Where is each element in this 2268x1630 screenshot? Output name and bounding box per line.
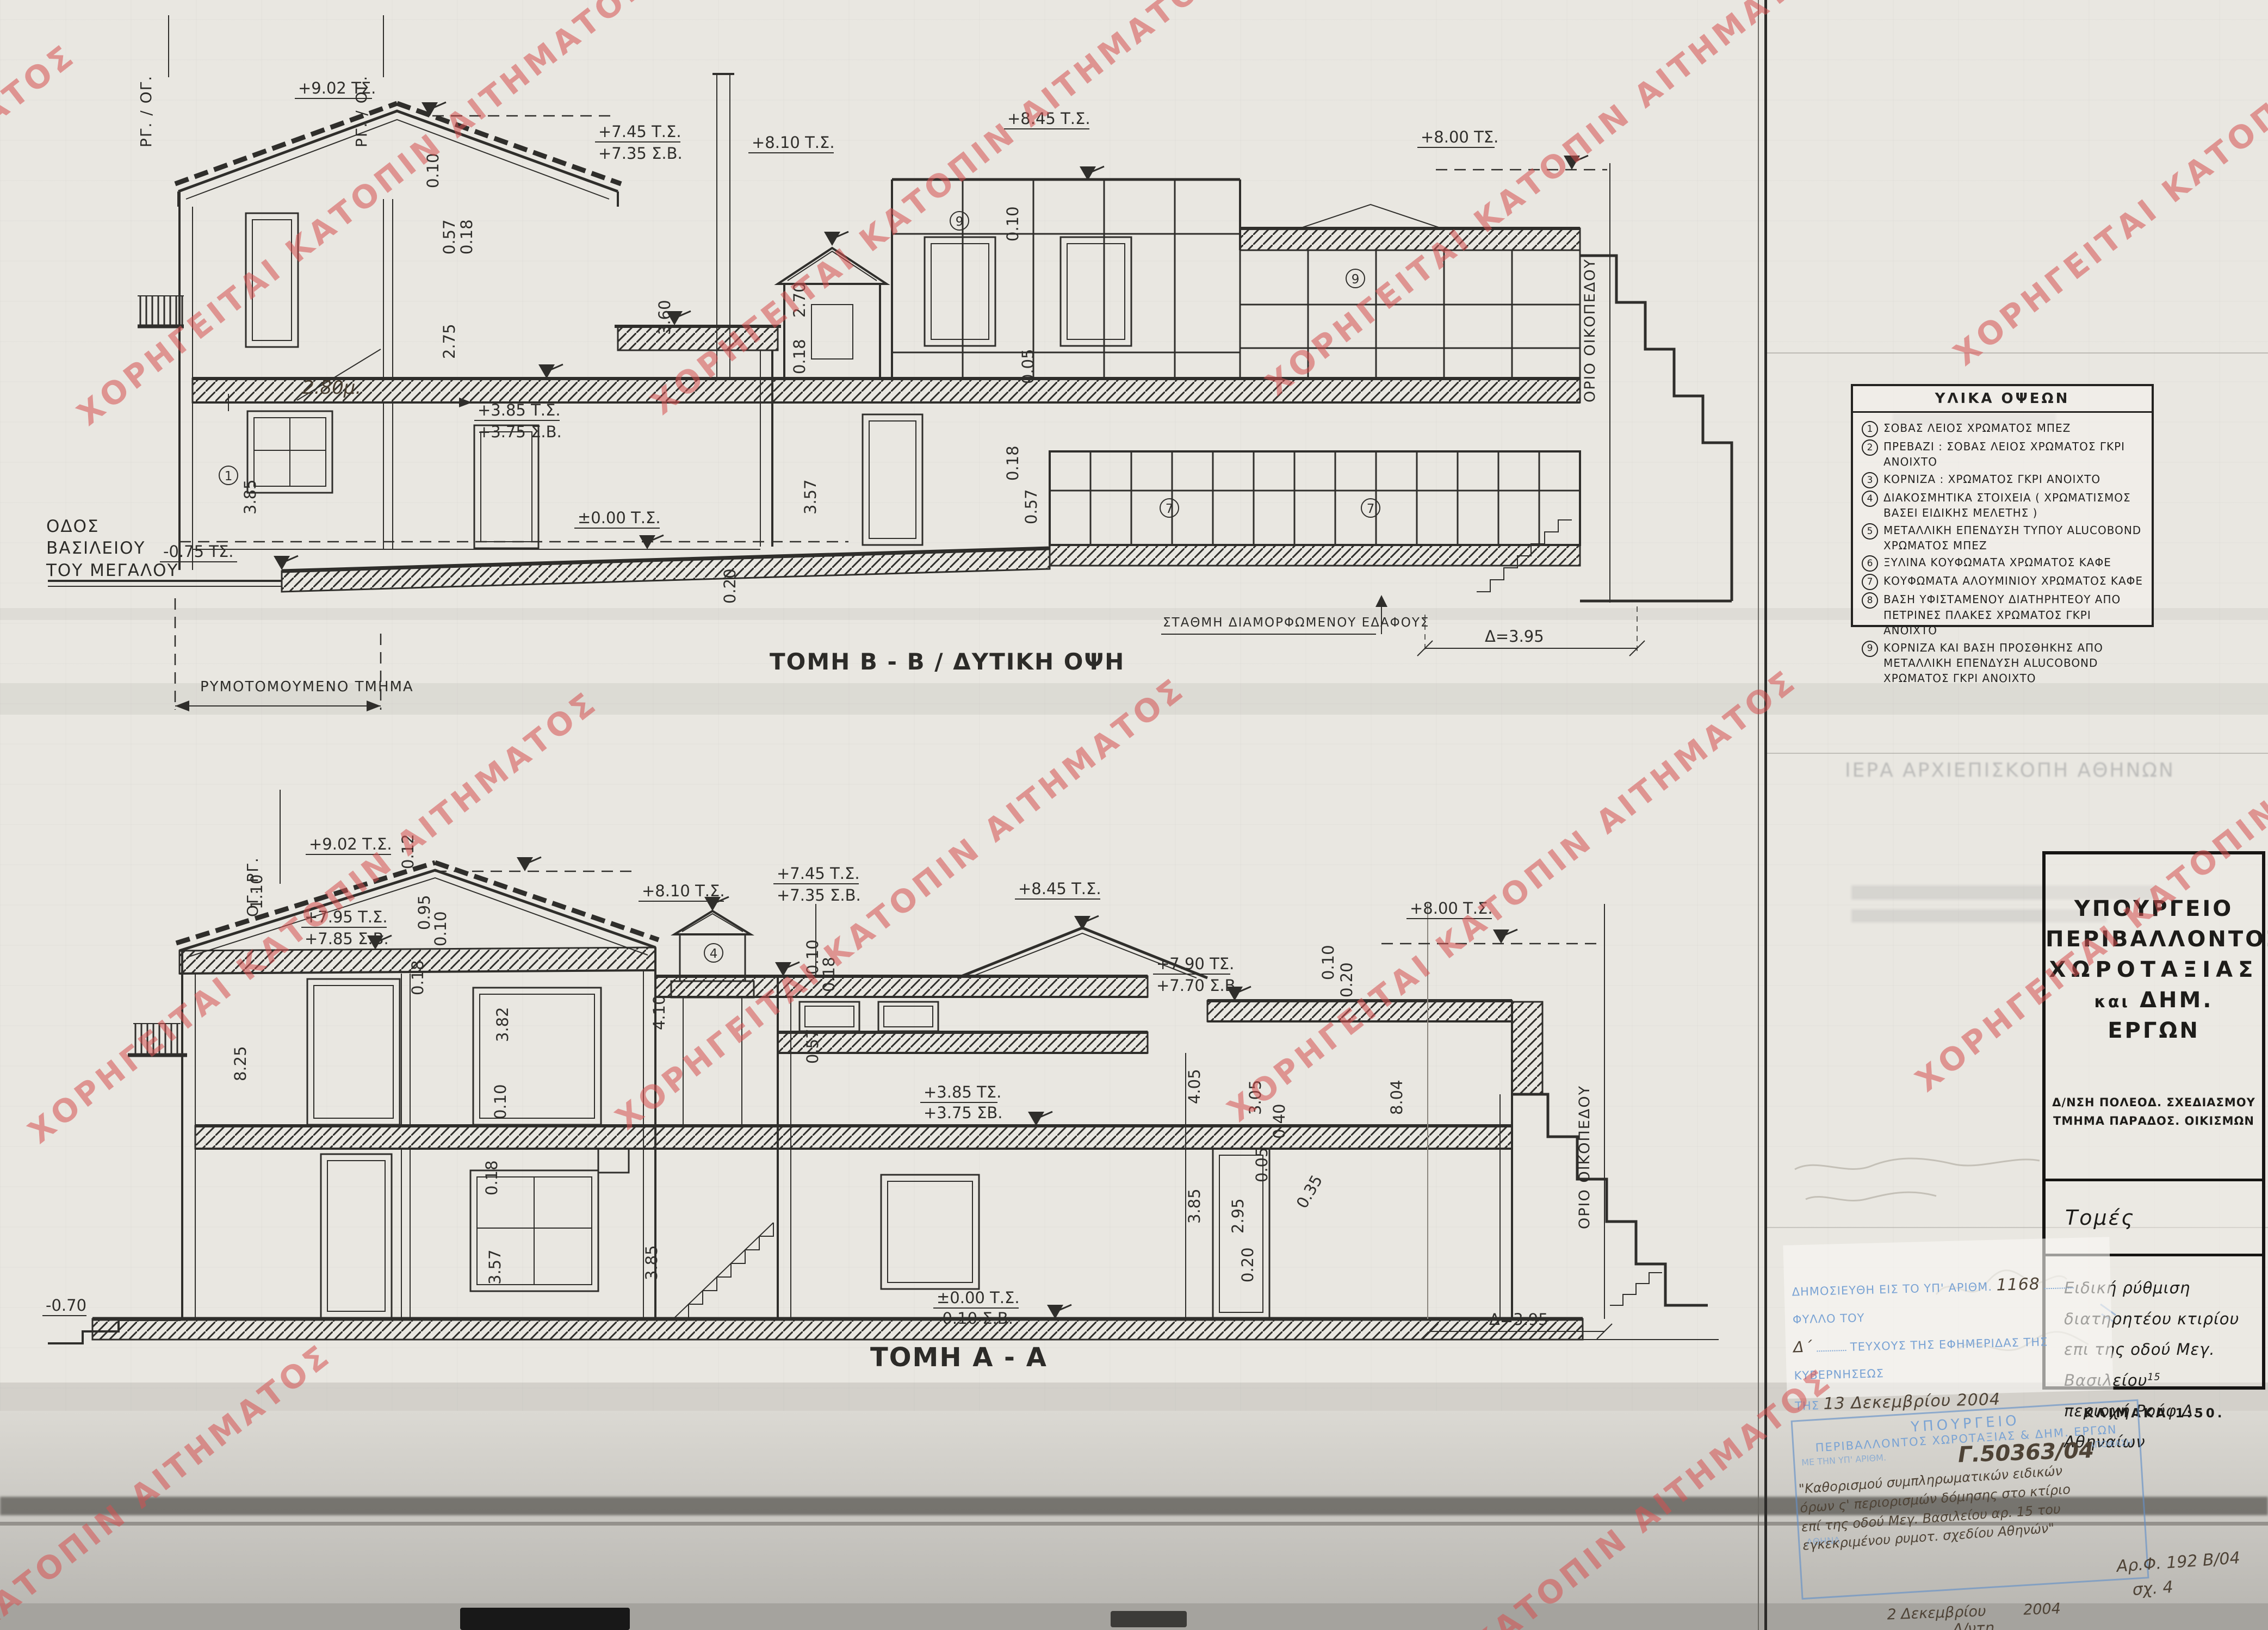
- svg-text:-0.10 Σ.Β.: -0.10 Σ.Β.: [937, 1309, 1013, 1328]
- plot-boundary-label-top: ΟΡΙΟ ΟΙΚΟΠΕΔΟΥ: [1582, 179, 1598, 402]
- svg-text:2.80μ.: 2.80μ.: [302, 377, 361, 399]
- dimension-label: 0.05: [1019, 349, 1037, 384]
- title-block-ministry: ΥΠΟΥΡΓΕΙΟ ΠΕΡΙΒΑΛΛΟΝΤΟΣ ΧΩΡΟΤΑΞΙΑΣ και Δ…: [2046, 894, 2262, 1181]
- legend-item-text: ΚΟΡΝΙΖΑ : ΧΡΩΜΑΤΟΣ ΓΚΡΙ ΑΝΟΙΧΤΟ: [1883, 472, 2100, 488]
- ground-level-label: ΣΤΑΘΜΗ ΔΙΑΜΟΡΦΩΜΕΝΟΥ ΕΔΑΦΟΥΣ: [1163, 616, 1429, 630]
- svg-text:±0.00 Τ.Σ.: ±0.00 Τ.Σ.: [578, 509, 661, 527]
- dimension-label: +8.45 Τ.Σ.: [1015, 879, 1101, 899]
- dimension-label: 0.35: [1293, 1172, 1327, 1212]
- svg-text:8.04: 8.04: [1387, 1080, 1406, 1115]
- dimension-label: 0.40: [1270, 1104, 1288, 1139]
- section-b-b-drawing: [48, 15, 1732, 711]
- regulation-line-label-bottom: ΟΓ. ΡΓ.: [244, 792, 262, 917]
- svg-text:0.20: 0.20: [721, 568, 739, 604]
- section-a-a-drawing: [48, 790, 1719, 1343]
- dimension-label: 0.57: [1022, 489, 1040, 524]
- dimension-label: +3.75 Σ.Β.: [478, 423, 562, 441]
- svg-text:0.12: 0.12: [399, 834, 417, 869]
- svg-text:0.10: 0.10: [1003, 206, 1022, 241]
- svg-text:2.75: 2.75: [440, 324, 458, 359]
- svg-text:Δ=3.95: Δ=3.95: [1485, 627, 1544, 646]
- dimension-label: 0.18: [482, 1160, 501, 1195]
- dimension-label: -0.10 Σ.Β.: [937, 1309, 1013, 1328]
- legend-item-number: 1: [1862, 421, 1878, 437]
- street-name-line: ΟΔΟΣ: [46, 516, 178, 537]
- svg-text:+3.85 ΤΣ.: +3.85 ΤΣ.: [924, 1083, 1001, 1101]
- svg-text:+8.45 Τ.Σ.: +8.45 Τ.Σ.: [1018, 879, 1101, 898]
- svg-text:0.35: 0.35: [1293, 1172, 1327, 1212]
- svg-text:+8.45 Τ.Σ.: +8.45 Τ.Σ.: [1007, 109, 1090, 128]
- legend-item: 8 ΒΑΣΗ ΥΦΙΣΤΑΜΕΝΟΥ ΔΙΑΤΗΡΗΤΕΟΥ ΑΠΟ ΠΕΤΡΙ…: [1862, 592, 2144, 638]
- regulation-line-label: ΡΓ. / ΟΓ.: [137, 14, 155, 147]
- legend-item-number: 9: [1862, 641, 1878, 657]
- section-b-title: ΤΟΜΗ Β - Β / ΔΥΤΙΚΗ ΟΨΗ: [770, 648, 1125, 675]
- svg-text:3.82: 3.82: [493, 1007, 512, 1042]
- ministry-line: και ΔΗΜ. ΕΡΓΩΝ: [2046, 985, 2262, 1046]
- svg-text:2.70: 2.70: [790, 282, 809, 318]
- svg-text:0.10: 0.10: [431, 911, 450, 946]
- ministry-line: ΧΩΡΟΤΑΞΙΑΣ: [2046, 955, 2262, 985]
- svg-text:1: 1: [225, 469, 233, 484]
- dimension-label: 2.80μ.: [302, 377, 361, 399]
- dimension-label: 0.10: [803, 939, 822, 975]
- legend-item: 5 ΜΕΤΑΛΛΙΚΗ ΕΠΕΝΔΥΣΗ ΤΥΠΟΥ ALUCOBOND ΧΡΩ…: [1862, 523, 2144, 554]
- material-ref-badge: 4: [704, 944, 723, 962]
- svg-text:0.20: 0.20: [1337, 962, 1356, 997]
- legend-item-number: 7: [1862, 574, 1878, 590]
- svg-text:3.85: 3.85: [1185, 1188, 1204, 1224]
- svg-text:3.05: 3.05: [1246, 1080, 1265, 1115]
- dimension-label: +7.35 Σ.Β.: [598, 144, 683, 163]
- dimension-label: +7.45 Τ.Σ.: [595, 122, 681, 142]
- dimension-label: 2.75: [440, 324, 458, 359]
- legend-item-number: 8: [1862, 592, 1878, 609]
- svg-text:+3.75 Σ.Β.: +3.75 Σ.Β.: [478, 423, 562, 441]
- dimension-label: +7.95 Τ.Σ.: [301, 908, 388, 927]
- svg-text:8.25: 8.25: [231, 1046, 250, 1081]
- dimension-label: +3.85 Τ.Σ.: [474, 401, 561, 420]
- dimension-label: 0.10: [1319, 945, 1337, 980]
- legend-item: 1 ΣΟΒΑΣ ΛΕΙΟΣ ΧΡΩΜΑΤΟΣ ΜΠΕΖ: [1862, 420, 2144, 437]
- svg-text:+7.35 Σ.Β.: +7.35 Σ.Β.: [598, 144, 683, 163]
- materials-legend: ΥΛΙΚΑ ΟΨΕΩΝ 1 ΣΟΒΑΣ ΛΕΙΟΣ ΧΡΩΜΑΤΟΣ ΜΠΕΖ …: [1851, 384, 2154, 627]
- svg-text:0.10: 0.10: [491, 1084, 510, 1119]
- svg-text:0.10: 0.10: [424, 153, 442, 188]
- dimension-label: 4.05: [1185, 1069, 1204, 1104]
- svg-text:3.57: 3.57: [801, 479, 820, 515]
- legend-item-text: ΚΟΡΝΙΖΑ ΚΑΙ ΒΑΣΗ ΠΡΟΣΘΗΚΗΣ ΑΠΟ ΜΕΤΑΛΛΙΚΗ…: [1883, 640, 2144, 686]
- svg-text:3.85: 3.85: [241, 479, 259, 515]
- legend-item-text: ΠΡΕΒΑΖΙ : ΣΟΒΑΣ ΛΕΙΟΣ ΧΡΩΜΑΤΟΣ ΓΚΡΙ ΑΝΟΙ…: [1883, 439, 2144, 470]
- dimension-label: +3.85 ΤΣ.: [920, 1083, 1001, 1102]
- svg-text:4.10: 4.10: [650, 995, 668, 1030]
- legend-item: 3 ΚΟΡΝΙΖΑ : ΧΡΩΜΑΤΟΣ ΓΚΡΙ ΑΝΟΙΧΤΟ: [1862, 472, 2144, 488]
- svg-text:0.57: 0.57: [440, 219, 458, 255]
- dimension-label: 0.10: [491, 1084, 510, 1119]
- dimension-label: Δ=3.95: [1485, 627, 1544, 646]
- svg-text:+8.00 ΤΣ.: +8.00 ΤΣ.: [1421, 128, 1498, 146]
- dimension-label: 0.20: [721, 568, 739, 604]
- dimension-label: 3.57: [486, 1249, 504, 1285]
- material-ref-badge: 9: [950, 212, 969, 230]
- ministry-line: ΥΠΟΥΡΓΕΙΟ: [2046, 894, 2262, 924]
- dimension-label: +7.70 Σ.Β.: [1156, 976, 1241, 995]
- stamp-small-text: ΑΠΟΦΑΣΗ: [2088, 1437, 2133, 1451]
- dimension-label: 0.18: [408, 960, 427, 995]
- svg-text:0.05: 0.05: [1253, 1147, 1271, 1182]
- dimension-label: ±0.00 Τ.Σ.: [933, 1288, 1020, 1308]
- dimension-label: +3.75 ΣΒ.: [924, 1104, 1003, 1122]
- svg-text:0.57: 0.57: [1022, 489, 1040, 524]
- svg-text:+7.85 Σ.Β.: +7.85 Σ.Β.: [305, 929, 389, 948]
- svg-text:2.95: 2.95: [1229, 1198, 1247, 1234]
- stamp-small-text: ΜΕ ΤΗΝ ΥΠ' ΑΡΙΘΜ.: [1801, 1452, 1887, 1467]
- svg-text:9: 9: [956, 215, 964, 229]
- gazette-text: ΤΗΣ: [1795, 1399, 1820, 1412]
- svg-text:0.57: 0.57: [803, 1028, 822, 1064]
- svg-text:+7.45 Τ.Σ.: +7.45 Τ.Σ.: [598, 122, 681, 141]
- material-ref-badge: 7: [1160, 499, 1179, 517]
- svg-text:+7.45 Τ.Σ.: +7.45 Τ.Σ.: [777, 864, 860, 883]
- svg-text:+9.02 Τ.Σ.: +9.02 Τ.Σ.: [309, 835, 392, 853]
- legend-item-text: ΔΙΑΚΟΣΜΗΤΙΚΑ ΣΤΟΙΧΕΙΑ ( ΧΡΩΜΑΤΙΣΜΟΣ ΒΑΣΕ…: [1883, 490, 2144, 521]
- svg-text:9: 9: [1352, 272, 1360, 287]
- legend-item-number: 2: [1862, 439, 1878, 456]
- dimension-label: +8.45 Τ.Σ.: [1004, 109, 1090, 129]
- dimension-label: 0.12: [399, 834, 417, 869]
- material-ref-badge: 7: [1361, 499, 1380, 517]
- svg-text:7: 7: [1166, 502, 1174, 516]
- dimension-label: 3.57: [801, 479, 820, 515]
- svg-text:7: 7: [1367, 502, 1375, 516]
- ministry-line: ΠΕΡΙΒΑΛΛΟΝΤΟΣ: [2046, 924, 2262, 955]
- street-number: 15: [2147, 1372, 2160, 1383]
- svg-text:0.95: 0.95: [415, 895, 433, 930]
- svg-text:0.18: 0.18: [790, 339, 809, 374]
- regulation-line-label: ΡΓ. / ΟΓ.: [352, 14, 370, 147]
- legend-item-text: ΞΥΛΙΝΑ ΚΟΥΦΩΜΑΤΑ ΧΡΩΜΑΤΟΣ ΚΑΦΕ: [1883, 555, 2111, 572]
- svg-text:±0.00 Τ.Σ.: ±0.00 Τ.Σ.: [937, 1288, 1020, 1307]
- dimension-label: 0.95: [415, 895, 433, 930]
- date-part: 2004: [2023, 1600, 2061, 1618]
- legend-item-number: 4: [1862, 491, 1878, 507]
- department-line: ΤΜΗΜΑ ΠΑΡΑΔΟΣ. ΟΙΚΙΣΜΩΝ: [2046, 1112, 2262, 1131]
- street-name-line: ΒΑΣΙΛΕΙΟΥ: [46, 537, 178, 559]
- legend-item: 2 ΠΡΕΒΑΖΙ : ΣΟΒΑΣ ΛΕΙΟΣ ΧΡΩΜΑΤΟΣ ΓΚΡΙ ΑΝ…: [1862, 439, 2144, 470]
- legend-item-number: 6: [1862, 555, 1878, 572]
- svg-text:+7.90 ΤΣ.: +7.90 ΤΣ.: [1156, 955, 1234, 973]
- dimension-label: 0.20: [1238, 1247, 1257, 1282]
- svg-text:-0.70: -0.70: [46, 1296, 86, 1315]
- svg-text:0.10: 0.10: [803, 939, 822, 975]
- material-ref-badge: 9: [1346, 269, 1365, 288]
- legend-item-text: ΒΑΣΗ ΥΦΙΣΤΑΜΕΝΟΥ ΔΙΑΤΗΡΗΤΕΟΥ ΑΠΟ ΠΕΤΡΙΝΕ…: [1883, 592, 2144, 638]
- legend-item: 9 ΚΟΡΝΙΖΑ ΚΑΙ ΒΑΣΗ ΠΡΟΣΘΗΚΗΣ ΑΠΟ ΜΕΤΑΛΛΙ…: [1862, 640, 2144, 686]
- department-line: Δ/ΝΣΗ ΠΟΛΕΟΔ. ΣΧΕΔΙΑΣΜΟΥ: [2046, 1094, 2262, 1112]
- gazette-text: ΦΥΛΛΟ ΤΟΥ: [1793, 1311, 1865, 1326]
- gazette-text: ΔΗΜΟΣΙΕΥΘΗ ΕΙΣ ΤΟ ΥΠ' ΑΡΙΘΜ.: [1792, 1280, 1992, 1299]
- expropriated-part-label: ΡΥΜΟΤΟΜΟΥΜΕΝΟ ΤΜΗΜΑ: [200, 679, 414, 695]
- dimension-label: 0.57: [440, 219, 458, 255]
- svg-text:0.18: 0.18: [482, 1160, 501, 1195]
- dimension-label: 0.18: [1003, 445, 1022, 481]
- gazette-publication-stamp: ΔΗΜΟΣΙΕΥΘΗ ΕΙΣ ΤΟ ΥΠ' ΑΡΙΘΜ. 1168 ΦΥΛΛΟ …: [1783, 1237, 2113, 1399]
- legend-item-text: ΣΟΒΑΣ ΛΕΙΟΣ ΧΡΩΜΑΤΟΣ ΜΠΕΖ: [1883, 420, 2071, 437]
- svg-text:3.60: 3.60: [655, 300, 674, 335]
- material-ref-badge: 1: [219, 466, 238, 485]
- svg-text:+3.85 Τ.Σ.: +3.85 Τ.Σ.: [478, 401, 561, 419]
- dimension-label: 4.10: [650, 995, 668, 1030]
- dimension-label: +7.90 ΤΣ.: [1153, 955, 1234, 974]
- svg-text:4: 4: [710, 947, 718, 961]
- svg-text:+8.00 Τ.Σ.: +8.00 Τ.Σ.: [1410, 899, 1493, 918]
- dimension-label: +8.00 ΤΣ.: [1417, 128, 1498, 147]
- svg-text:Δ=3.95: Δ=3.95: [1489, 1310, 1548, 1329]
- legend-list: 1 ΣΟΒΑΣ ΛΕΙΟΣ ΧΡΩΜΑΤΟΣ ΜΠΕΖ 2 ΠΡΕΒΑΖΙ : …: [1853, 413, 2152, 686]
- svg-text:3.57: 3.57: [486, 1249, 504, 1285]
- dimension-label: +8.10 Τ.Σ.: [748, 133, 835, 153]
- dotted-leader: [1817, 1342, 1846, 1352]
- street-name-line: ΤΟΥ ΜΕΓΑΛΟΥ: [46, 560, 178, 581]
- dimension-label: 3.85: [241, 479, 259, 515]
- dimension-label: ±0.00 Τ.Σ.: [574, 509, 661, 528]
- dimension-label: 3.85: [642, 1245, 661, 1280]
- svg-text:0.18: 0.18: [457, 219, 476, 255]
- dimension-label: +8.10 Τ.Σ.: [639, 882, 725, 901]
- dimension-label: 3.60: [655, 300, 674, 335]
- dimension-label: +9.02 Τ.Σ.: [306, 835, 392, 854]
- legend-item-text: ΚΟΥΦΩΜΑΤΑ ΑΛΟΥΜΙΝΙΟΥ ΧΡΩΜΑΤΟΣ ΚΑΦΕ: [1883, 573, 2143, 590]
- dimension-label: 0.57: [803, 1028, 822, 1064]
- section-a-title: ΤΟΜΗ Α - Α: [870, 1342, 1048, 1373]
- dimension-label: +7.35 Σ.Β.: [777, 886, 861, 904]
- svg-text:3.85: 3.85: [642, 1245, 661, 1280]
- svg-text:0.40: 0.40: [1270, 1104, 1288, 1139]
- svg-text:+8.10 Τ.Σ.: +8.10 Τ.Σ.: [752, 133, 835, 152]
- dimension-label: 8.04: [1387, 1080, 1406, 1115]
- gazette-line1: ΔΗΜΟΣΙΕΥΘΗ ΕΙΣ ΤΟ ΥΠ' ΑΡΙΘΜ. 1168 ΦΥΛΛΟ …: [1792, 1265, 2106, 1331]
- dimension-label: -0.70: [42, 1296, 86, 1316]
- svg-text:+3.75 ΣΒ.: +3.75 ΣΒ.: [924, 1104, 1003, 1122]
- gazette-line2: Δ΄ ΤΕΥΧΟΥΣ ΤΗΣ ΕΦΗΜΕΡΙΔΑΣ ΤΗΣ ΚΥΒΕΡΝΗΣΕΩ…: [1793, 1323, 2108, 1387]
- dimension-label: 0.10: [1003, 206, 1022, 241]
- ministry-line-part: και: [2095, 993, 2130, 1012]
- drawing-type-label: Τομές: [2065, 1206, 2135, 1230]
- svg-text:+8.10 Τ.Σ.: +8.10 Τ.Σ.: [642, 882, 725, 900]
- legend-item: 7 ΚΟΥΦΩΜΑΤΑ ΑΛΟΥΜΙΝΙΟΥ ΧΡΩΜΑΤΟΣ ΚΑΦΕ: [1862, 573, 2144, 590]
- dimension-label: 3.85: [1185, 1188, 1204, 1224]
- dimension-label: 0.18: [790, 339, 809, 374]
- legend-title: ΥΛΙΚΑ ΟΨΕΩΝ: [1853, 386, 2152, 413]
- dimension-label: 2.70: [790, 282, 809, 318]
- svg-text:0.18: 0.18: [1003, 445, 1022, 481]
- svg-text:+7.35 Σ.Β.: +7.35 Σ.Β.: [777, 886, 861, 904]
- dimension-label: Δ=3.95: [1489, 1310, 1548, 1329]
- legend-item-number: 5: [1862, 523, 1878, 540]
- dimension-label: 0.18: [820, 957, 838, 992]
- dimension-label: 0.10: [424, 153, 442, 188]
- dimension-label: 3.82: [493, 1007, 512, 1042]
- dotted-leader: [2044, 1280, 2073, 1289]
- dimension-label: +7.85 Σ.Β.: [305, 929, 389, 948]
- file-number-handwritten: Αρ.Φ. 192 Β/04 σχ. 4: [2116, 1546, 2242, 1603]
- legend-item-number: 3: [1862, 472, 1878, 488]
- dimension-label: 0.18: [457, 219, 476, 255]
- gazette-number-handwritten: 1168: [1996, 1275, 2040, 1295]
- gazette-issue-handwritten: Δ΄: [1793, 1338, 1813, 1356]
- svg-text:0.10: 0.10: [1319, 945, 1337, 980]
- svg-text:+7.70 Σ.Β.: +7.70 Σ.Β.: [1156, 976, 1241, 995]
- scanned-drawing-sheet: ΙΕΡΑ ΑΡΧΙΕΠΙΣΚΟΠΗ ΑΘΗΝΩΝ: [0, 0, 2268, 1630]
- dimension-label: +8.00 Τ.Σ.: [1406, 899, 1493, 919]
- svg-text:0.05: 0.05: [1019, 349, 1037, 384]
- dimension-label: 0.05: [1253, 1147, 1271, 1182]
- street-name-label: ΟΔΟΣ ΒΑΣΙΛΕΙΟΥ ΤΟΥ ΜΕΓΑΛΟΥ: [46, 516, 178, 581]
- legend-item: 4 ΔΙΑΚΟΣΜΗΤΙΚΑ ΣΤΟΙΧΕΙΑ ( ΧΡΩΜΑΤΙΣΜΟΣ ΒΑ…: [1862, 490, 2144, 521]
- dimension-label: 8.25: [231, 1046, 250, 1081]
- svg-text:0.18: 0.18: [820, 957, 838, 992]
- dimension-label: 0.20: [1337, 962, 1356, 997]
- dimension-label: 0.10: [431, 911, 450, 946]
- legend-item: 6 ΞΥΛΙΝΑ ΚΟΥΦΩΜΑΤΑ ΧΡΩΜΑΤΟΣ ΚΑΦΕ: [1862, 555, 2144, 572]
- svg-text:0.18: 0.18: [408, 960, 427, 995]
- dimension-label: 3.05: [1246, 1080, 1265, 1115]
- plot-boundary-label-bottom: ΟΡΙΟ ΟΙΚΟΠΕΔΟΥ: [1576, 995, 1593, 1229]
- svg-text:+7.95 Τ.Σ.: +7.95 Τ.Σ.: [305, 908, 388, 926]
- dimension-label: 2.95: [1229, 1198, 1247, 1234]
- legend-item-text: ΜΕΤΑΛΛΙΚΗ ΕΠΕΝΔΥΣΗ ΤΥΠΟΥ ALUCOBOND ΧΡΩΜΑ…: [1883, 523, 2144, 554]
- dimension-label: +7.45 Τ.Σ.: [773, 864, 860, 884]
- svg-text:4.05: 4.05: [1185, 1069, 1204, 1104]
- svg-text:0.20: 0.20: [1238, 1247, 1257, 1282]
